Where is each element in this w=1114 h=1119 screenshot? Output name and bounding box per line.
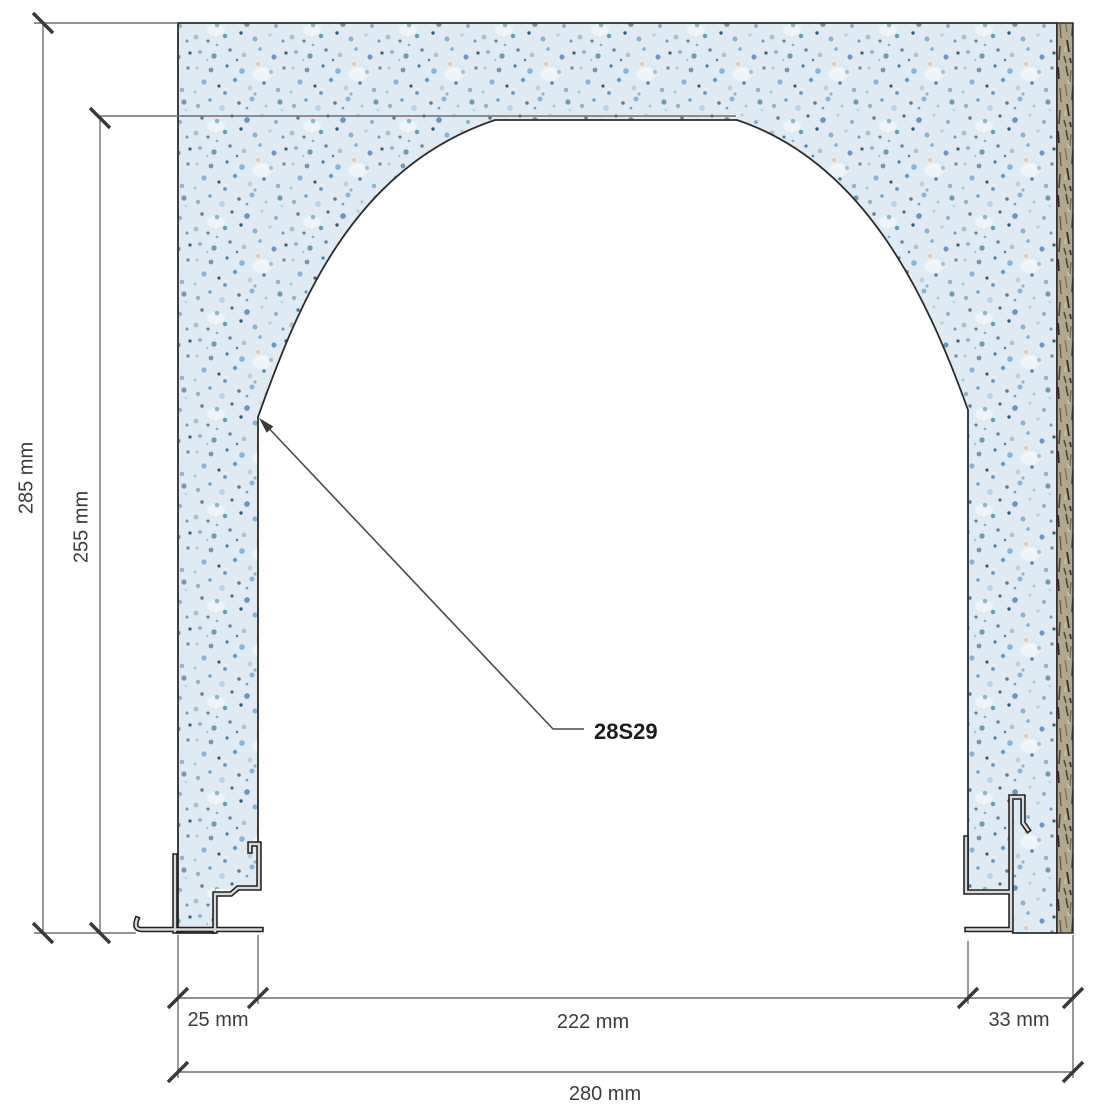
part-leader bbox=[259, 418, 584, 729]
drawing-canvas: 285 mm 255 mm 25 mm 222 mm 33 mm 280 mm … bbox=[0, 0, 1114, 1119]
dim-label-total-width: 280 mm bbox=[569, 1083, 641, 1105]
dim-label-total-height: 285 mm bbox=[15, 442, 37, 514]
osb-edge-strip bbox=[1057, 23, 1073, 933]
part-number-label: 28S29 bbox=[594, 719, 658, 744]
dim-label-right-jamb: 33 mm bbox=[988, 1009, 1049, 1031]
wall-panel bbox=[178, 23, 1057, 933]
dim-label-opening-height: 255 mm bbox=[70, 491, 92, 563]
dim-label-left-jamb: 25 mm bbox=[187, 1009, 248, 1031]
arch-detail-drawing: 285 mm 255 mm 25 mm 222 mm 33 mm 280 mm … bbox=[0, 0, 1114, 1119]
dim-label-opening-width: 222 mm bbox=[557, 1011, 629, 1033]
